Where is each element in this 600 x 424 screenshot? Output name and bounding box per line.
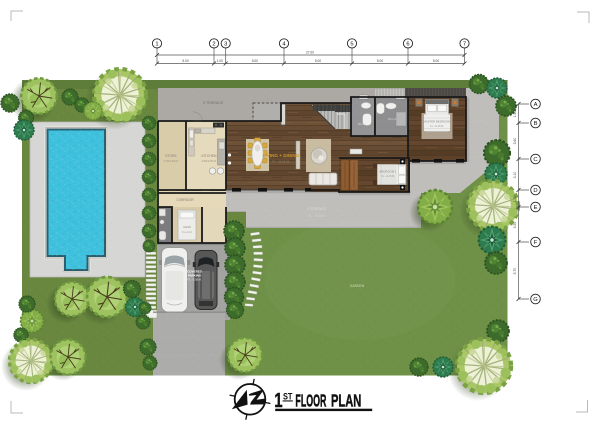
svg-text:G: G (533, 297, 538, 303)
svg-text:FL. +0.15 M.: FL. +0.15 M. (272, 160, 290, 164)
svg-text:3.70x2.60 M.: 3.70x2.60 M. (164, 159, 179, 163)
svg-text:LIVING + DINING: LIVING + DINING (263, 153, 300, 158)
svg-text:F: F (534, 240, 538, 246)
svg-text:S TERRACE: S TERRACE (203, 101, 224, 105)
svg-text:E: E (534, 205, 538, 211)
svg-text:5.00: 5.00 (433, 59, 439, 63)
svg-text:GARDEN: GARDEN (350, 284, 365, 288)
svg-text:3.60: 3.60 (513, 138, 517, 145)
svg-text:7: 7 (463, 41, 466, 47)
svg-text:ST: ST (283, 391, 293, 402)
svg-text:PLAN: PLAN (331, 392, 361, 411)
svg-text:3: 3 (224, 41, 227, 47)
svg-text:BEDROOM 1: BEDROOM 1 (380, 170, 397, 174)
svg-text:D: D (533, 188, 537, 194)
svg-text:3.60x3.00 M.: 3.60x3.00 M. (202, 159, 217, 163)
svg-text:5.00: 5.00 (252, 59, 258, 63)
svg-text:FL. -0.05 M.: FL. -0.05 M. (308, 214, 325, 218)
svg-text:5.70: 5.70 (513, 268, 517, 275)
svg-text:CORRIDOR: CORRIDOR (176, 198, 194, 202)
svg-text:3.10: 3.10 (513, 172, 517, 179)
svg-text:2: 2 (212, 41, 215, 47)
svg-text:C: C (533, 157, 537, 163)
svg-text:1.00: 1.00 (217, 59, 223, 63)
svg-text:PARKING: PARKING (188, 274, 202, 278)
svg-text:1: 1 (155, 41, 158, 47)
svg-text:5.00: 5.00 (182, 59, 188, 63)
svg-text:W.C.2: W.C.2 (388, 117, 396, 121)
svg-text:FL +0.10: FL +0.10 (182, 231, 192, 234)
svg-text:MASTER BEDROOM: MASTER BEDROOM (424, 120, 452, 124)
svg-text:FL. +0.15 M.: FL. +0.15 M. (381, 175, 395, 178)
svg-text:A: A (534, 102, 538, 108)
svg-text:5.00: 5.00 (315, 59, 321, 63)
svg-text:STORE: STORE (165, 154, 177, 158)
svg-text:1.70: 1.70 (513, 196, 517, 203)
svg-text:KITCHEN: KITCHEN (202, 154, 217, 158)
svg-text:1: 1 (274, 389, 282, 412)
svg-text:FL. -0.05 M.: FL. -0.05 M. (188, 278, 202, 282)
svg-text:W.C.1: W.C.1 (358, 122, 366, 126)
svg-text:MAID: MAID (183, 225, 191, 229)
svg-text:B: B (534, 121, 538, 127)
svg-text:5: 5 (350, 41, 353, 47)
svg-text:1.90: 1.90 (513, 111, 517, 118)
svg-text:27.00: 27.00 (306, 51, 314, 55)
svg-text:6: 6 (406, 41, 409, 47)
svg-text:S TERRACE: S TERRACE (307, 207, 327, 211)
svg-text:3.50: 3.50 (513, 222, 517, 229)
svg-text:5.00: 5.00 (377, 59, 383, 63)
svg-text:FL. +0.15 M.: FL. +0.15 M. (430, 125, 444, 128)
svg-text:FLOOR: FLOOR (295, 390, 326, 410)
